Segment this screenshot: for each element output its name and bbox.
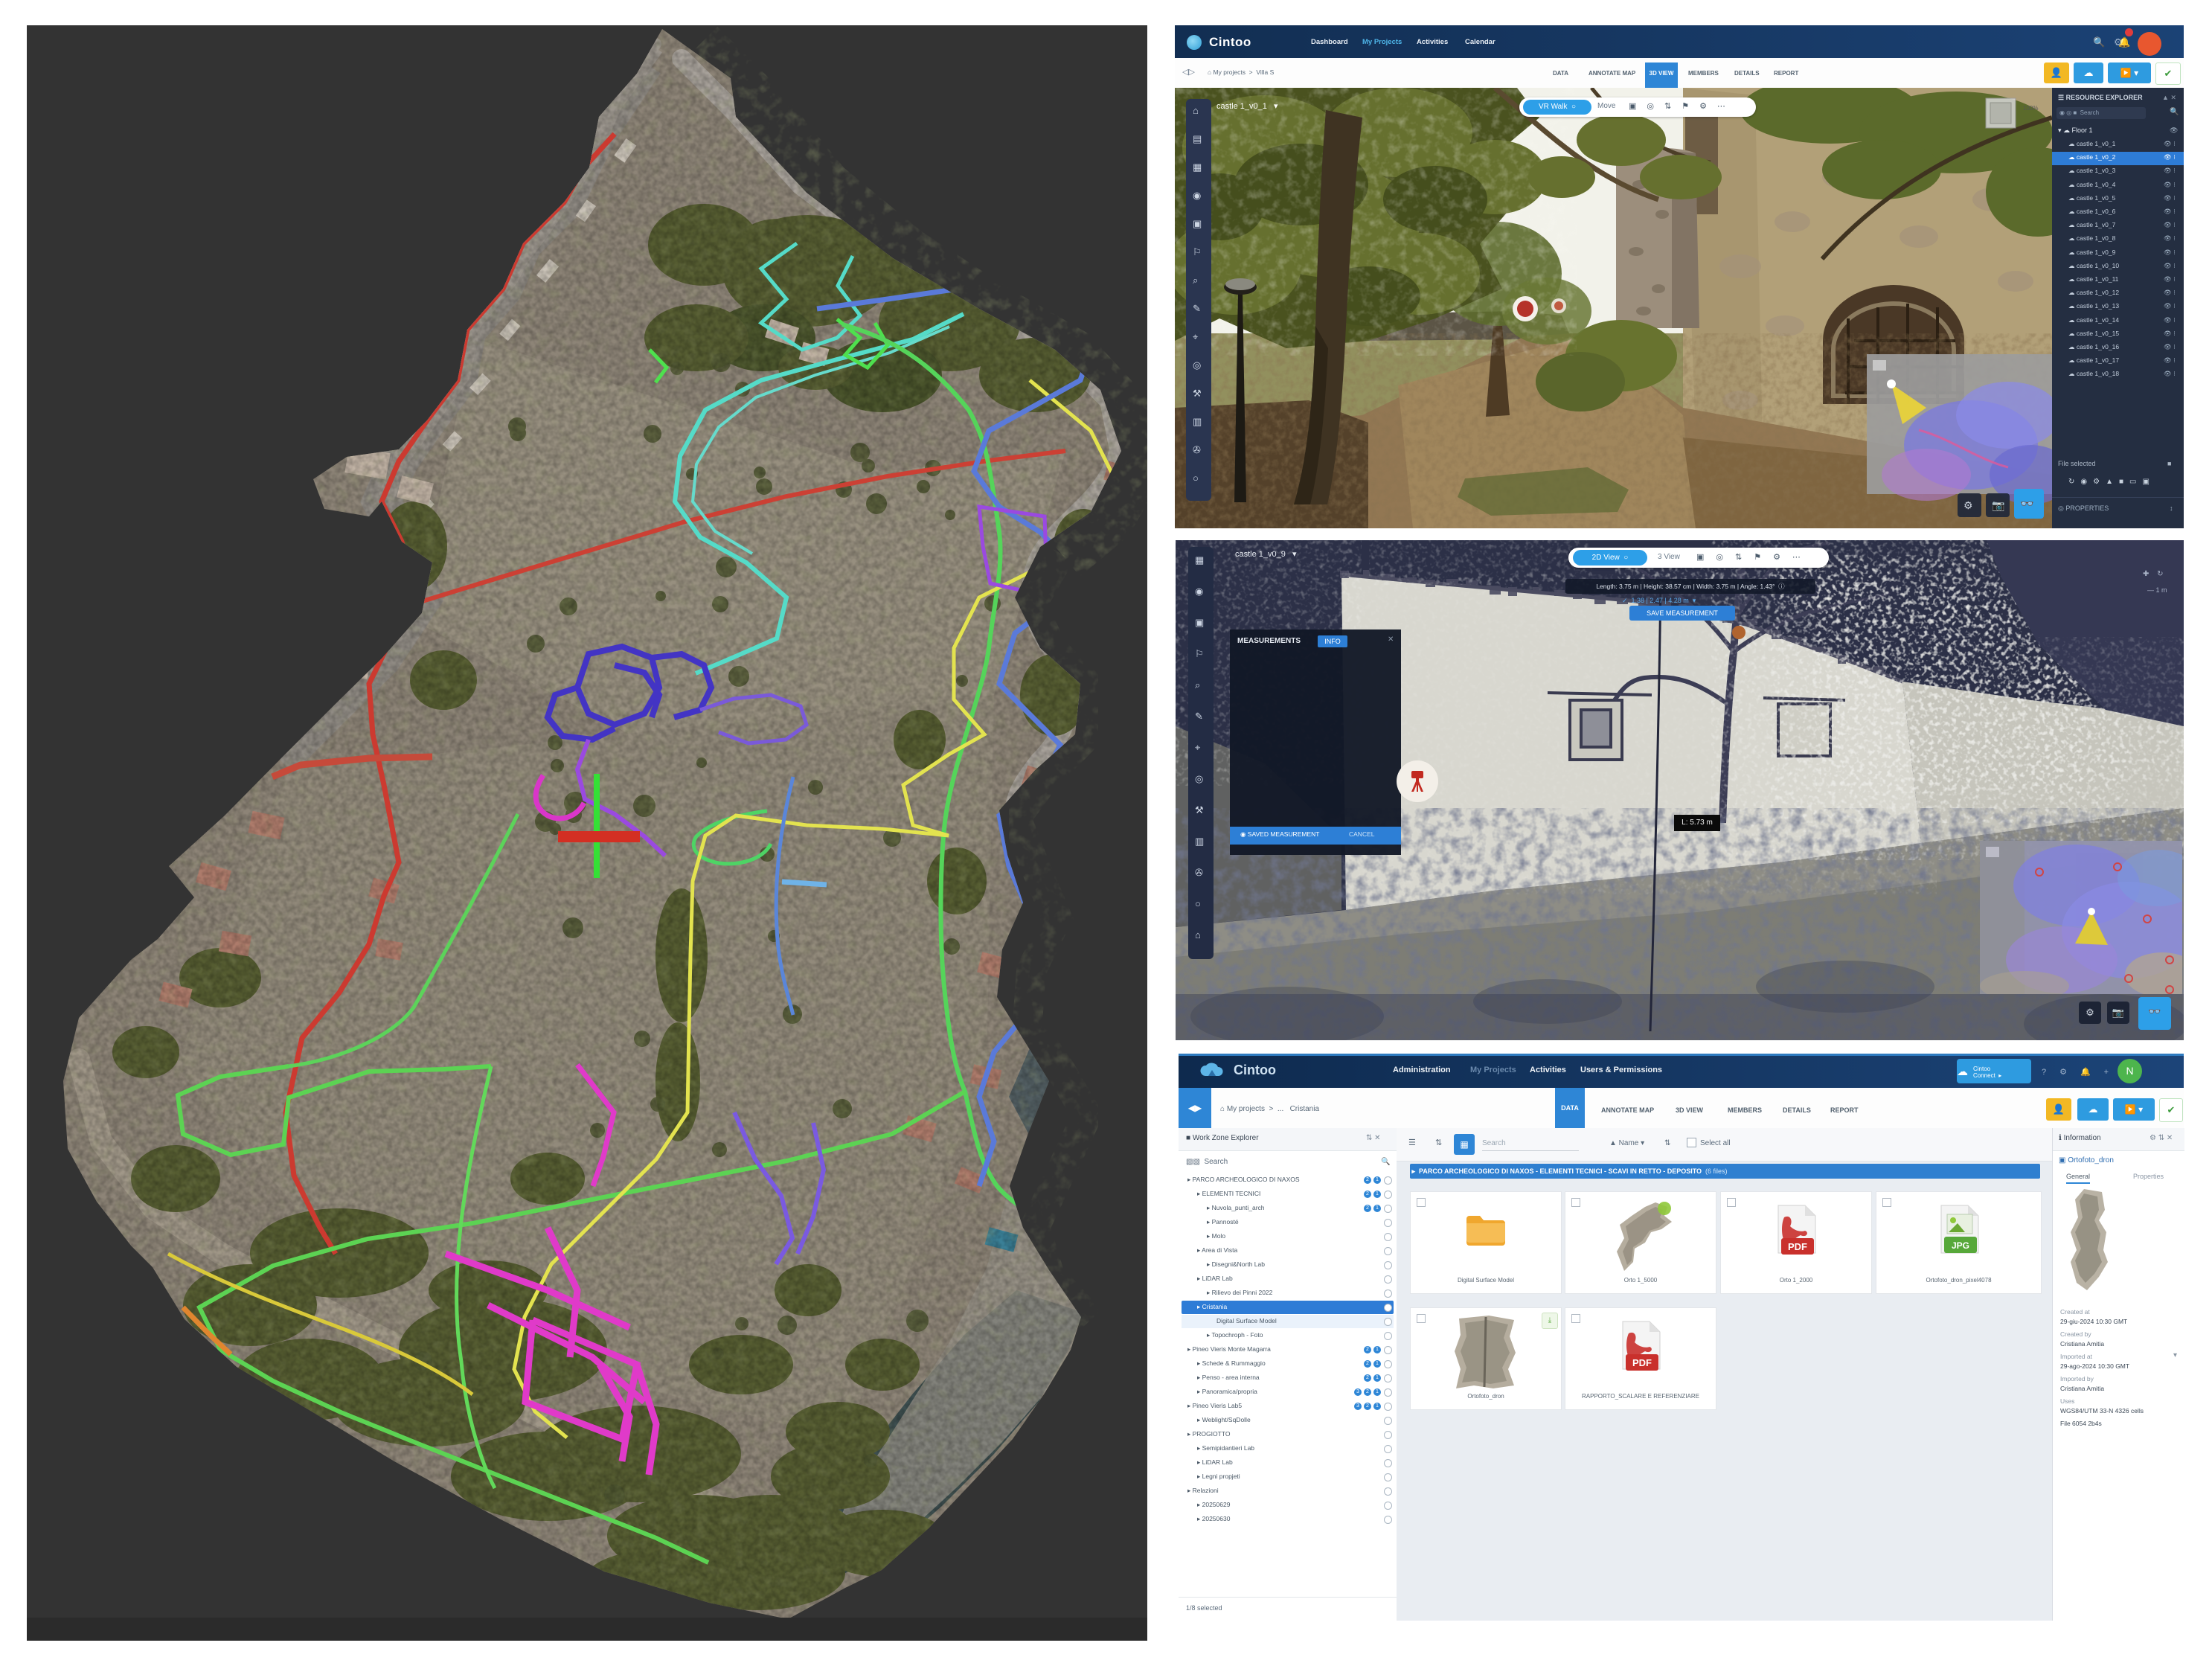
svg-text:👓: 👓 [2020,498,2034,510]
svg-text:PDF: PDF [1788,1241,1807,1252]
svg-text:JPG: JPG [1951,1240,1969,1251]
svg-text:100%: 100% [2023,105,2038,112]
svg-text:castle 1_v0_1 ▾: castle 1_v0_1 ▾ [1216,102,1278,111]
svg-text:⚙: ⚙ [1963,499,1973,511]
svg-text:PDF: PDF [1632,1357,1652,1368]
svg-text:📷: 📷 [1992,499,2004,512]
